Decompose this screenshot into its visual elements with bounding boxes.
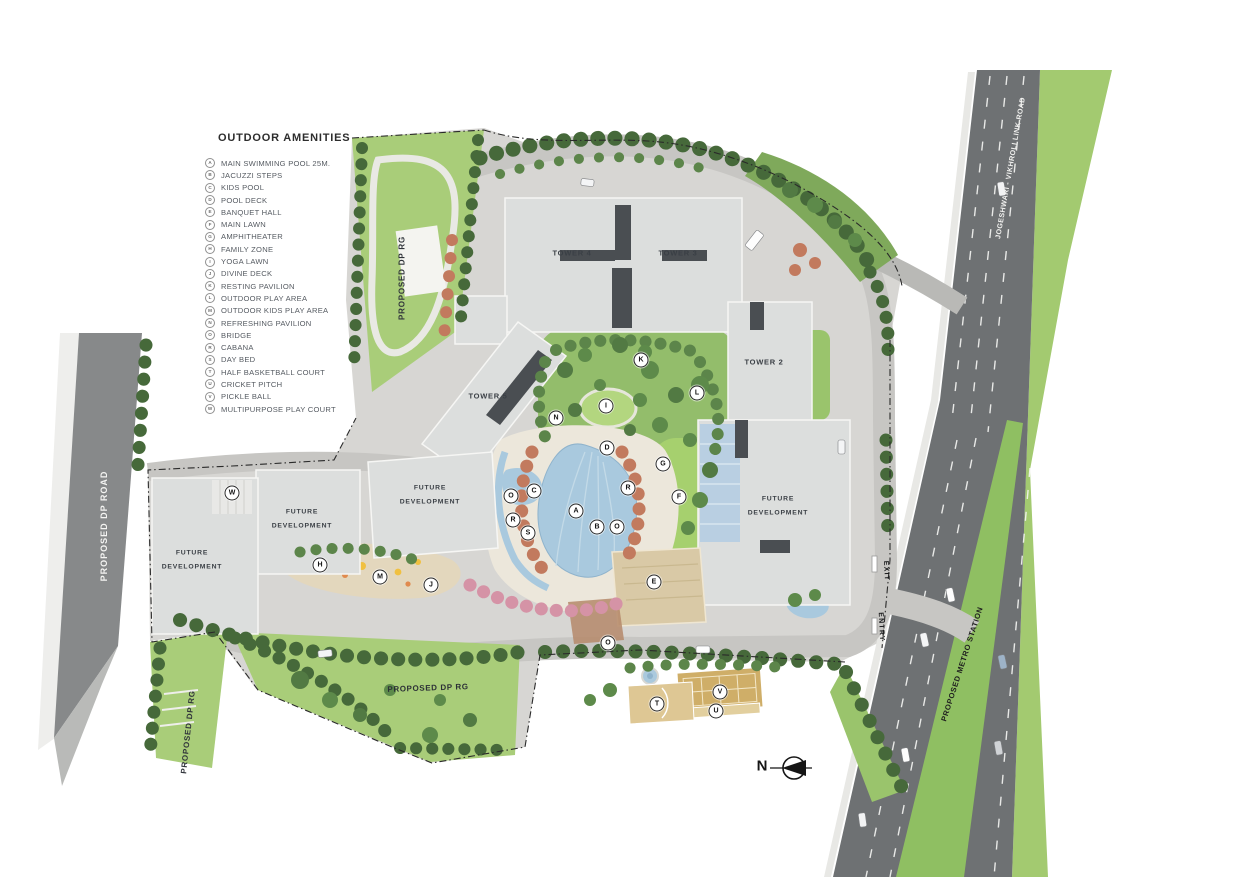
- legend-item: UCRICKET PITCH: [205, 378, 380, 390]
- legend-item: RCABANA: [205, 341, 380, 353]
- legend-item: SDAY BED: [205, 354, 380, 366]
- legend-item: HFAMILY ZONE: [205, 243, 380, 255]
- legend-items: AMAIN SWIMMING POOL 25M.BJACUZZI STEPSCK…: [205, 157, 380, 415]
- legend-item: MOUTDOOR KIDS PLAY AREA: [205, 305, 380, 317]
- legend-item: LOUTDOOR PLAY AREA: [205, 292, 380, 304]
- future-development-label: FUTURE DEVELOPMENT: [388, 482, 472, 511]
- legend-item: FMAIN LAWN: [205, 218, 380, 230]
- legend-item: GAMPHITHEATER: [205, 231, 380, 243]
- future-development-label: FUTURE DEVELOPMENT: [150, 547, 234, 576]
- legend-item: WMULTIPURPOSE PLAY COURT: [205, 403, 380, 415]
- exit-label: EXIT: [882, 561, 890, 582]
- tower-4-label: TOWER 4: [553, 249, 592, 258]
- left-dp-road: [38, 333, 142, 786]
- proposed-dp-rg-label: PROPOSED DP RG: [398, 236, 407, 320]
- legend-item: KRESTING PAVILION: [205, 280, 380, 292]
- legend-item: AMAIN SWIMMING POOL 25M.: [205, 157, 380, 169]
- proposed-dp-road-label: PROPOSED DP ROAD: [99, 471, 109, 582]
- legend-item: DPOOL DECK: [205, 194, 380, 206]
- legend-item: JDIVINE DECK: [205, 268, 380, 280]
- future-development-label: FUTURE DEVELOPMENT: [736, 493, 820, 522]
- future-development-label: FUTURE DEVELOPMENT: [260, 506, 344, 535]
- legend-item: NREFRESHING PAVILION: [205, 317, 380, 329]
- legend-item: BJACUZZI STEPS: [205, 169, 380, 181]
- tower-5-label: TOWER 5: [469, 392, 508, 401]
- tower-2-label: TOWER 2: [745, 358, 784, 367]
- site-plan-page: OUTDOOR AMENITIES AMAIN SWIMMING POOL 25…: [0, 0, 1240, 877]
- legend-title: OUTDOOR AMENITIES: [218, 132, 380, 144]
- north-label: N: [757, 758, 768, 775]
- legend: OUTDOOR AMENITIES AMAIN SWIMMING POOL 25…: [205, 132, 380, 415]
- tower-3-label: TOWER 3: [659, 249, 698, 258]
- north-compass: [770, 757, 812, 779]
- legend-item: THALF BASKETBALL COURT: [205, 366, 380, 378]
- legend-item: VPICKLE BALL: [205, 391, 380, 403]
- legend-item: IYOGA LAWN: [205, 255, 380, 267]
- legend-item: OBRIDGE: [205, 329, 380, 341]
- entry-label: ENTRY: [877, 612, 886, 642]
- legend-item: EBANQUET HALL: [205, 206, 380, 218]
- legend-item: CKIDS POOL: [205, 182, 380, 194]
